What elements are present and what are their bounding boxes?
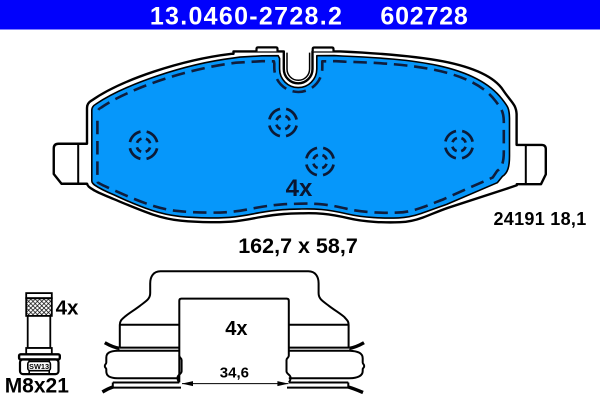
svg-text:602728: 602728 <box>380 2 468 30</box>
svg-text:24191 18,1: 24191 18,1 <box>493 209 586 229</box>
svg-text:13.0460-2728.2: 13.0460-2728.2 <box>150 2 343 30</box>
svg-text:34,6: 34,6 <box>220 365 249 382</box>
svg-text:4x: 4x <box>286 175 313 202</box>
svg-text:4x: 4x <box>56 297 79 320</box>
svg-text:SW13: SW13 <box>29 362 49 371</box>
svg-text:162,7 x 58,7: 162,7 x 58,7 <box>238 234 358 258</box>
svg-text:4x: 4x <box>225 318 247 340</box>
svg-text:M8x21: M8x21 <box>5 375 70 398</box>
